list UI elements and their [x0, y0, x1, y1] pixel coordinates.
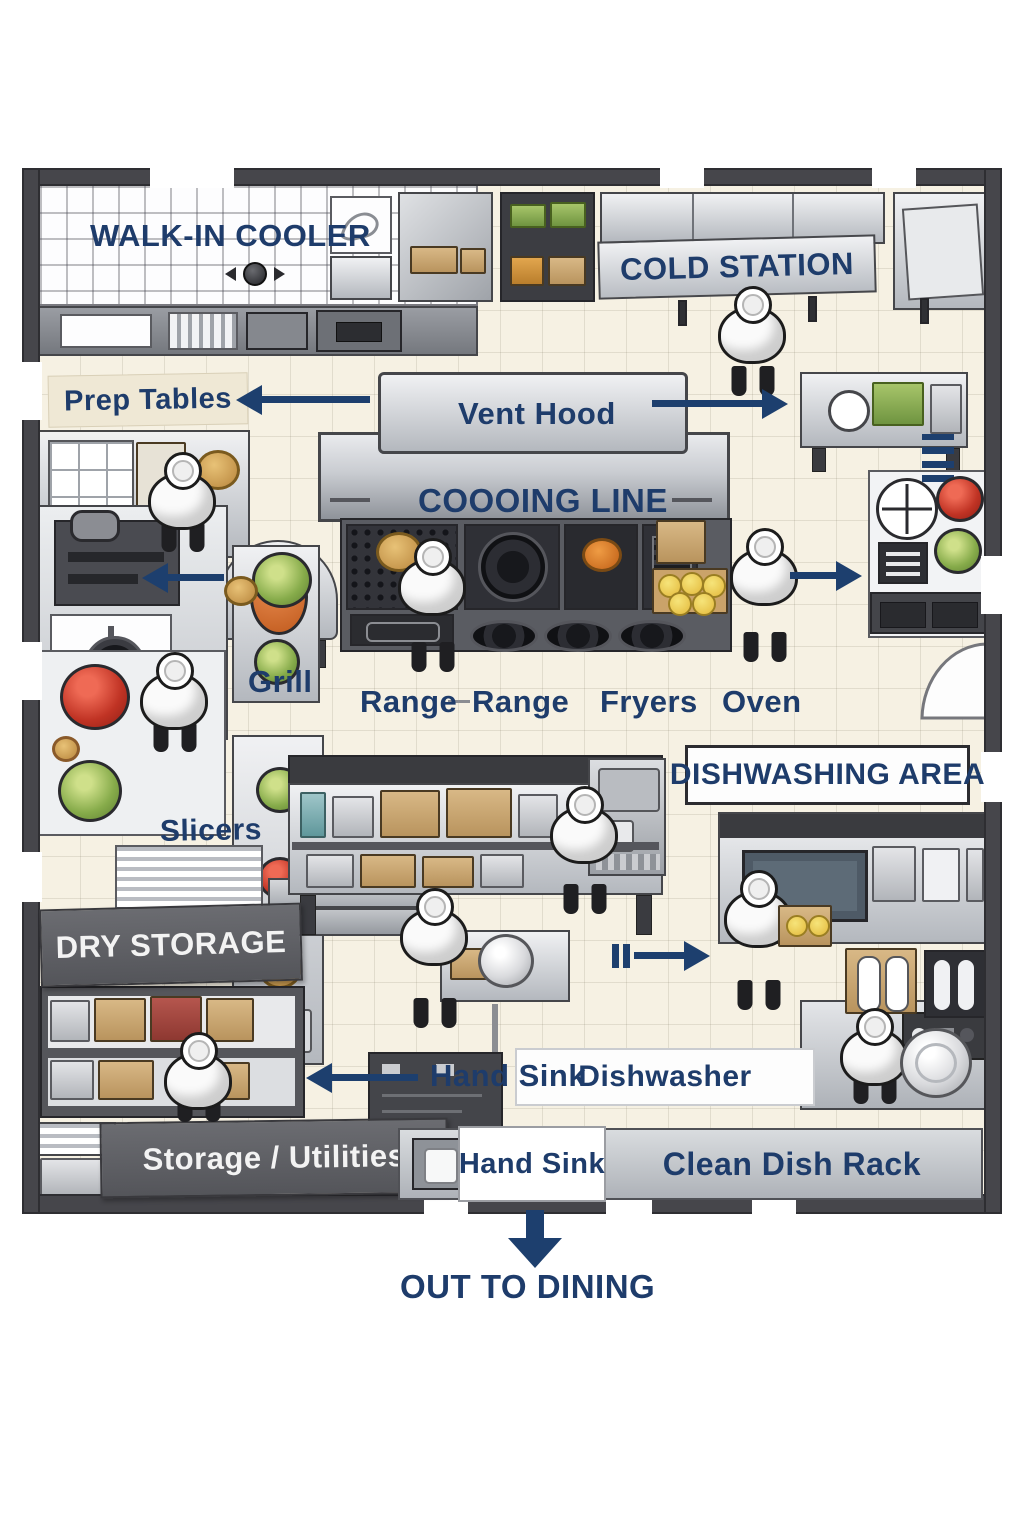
storage-box [50, 1060, 94, 1100]
tomato-plate-icon [936, 476, 984, 522]
bottle-icon [300, 792, 326, 838]
range-right-label: Range [472, 684, 569, 720]
storage-box [422, 856, 474, 888]
cooler-microwave [316, 310, 402, 352]
burner-icon [470, 620, 538, 652]
out-to-dining-arrow [508, 1210, 562, 1268]
storage-box [50, 1000, 90, 1042]
hand-sink-flow-label: Hand Sink [430, 1058, 586, 1094]
plate-rack [845, 948, 917, 1014]
top-counter-unit [330, 256, 392, 300]
dishwashing-area-label: DISHWASHING AREA [670, 758, 985, 792]
bin-icon [306, 854, 354, 888]
hand-sink-station: Hand Sink [458, 1126, 606, 1202]
utensil-hook-icon [920, 298, 929, 324]
wash-plate-icon [900, 1028, 972, 1098]
flow-arrow-to-cold [652, 400, 762, 407]
hand-sink-station-label: Hand Sink [459, 1148, 605, 1181]
prep-tables-label: Prep Tables [64, 382, 232, 418]
bin-icon [332, 796, 374, 838]
cooler-appliance [246, 312, 308, 350]
shelf-ladder-icon [922, 434, 954, 482]
fryers-label: Fryers [600, 684, 698, 720]
flow-arrow-left [168, 574, 224, 581]
small-bowl-icon [52, 736, 80, 762]
flow-arrow-to-dish [634, 952, 684, 959]
flow-hash-mark [612, 944, 619, 968]
kitchen-floor-plan: WALK-IN COOLER COLD STATION [0, 0, 1024, 1536]
storage-box [446, 788, 512, 838]
storage-box [94, 998, 146, 1042]
chef-figure [548, 786, 622, 914]
cold-station-label: COLD STATION [620, 246, 855, 288]
slicers-label: Slicers [160, 813, 262, 849]
wall-gap [981, 556, 1005, 614]
oven-label: Oven [722, 684, 802, 720]
bin-icon [480, 854, 524, 888]
dome-tray-icon [478, 934, 534, 988]
burner-icon [544, 620, 612, 652]
bottle-box [778, 905, 832, 947]
dry-storage-label: DRY STORAGE [55, 924, 286, 966]
storage-box [360, 854, 416, 888]
vent-louver [115, 845, 263, 909]
salad-plate-icon [934, 528, 982, 574]
scale-icon [876, 478, 938, 540]
range-left-label: Range [360, 684, 457, 720]
pass-shelf-unit [398, 192, 493, 302]
wall-gap [19, 852, 42, 902]
wall-gap [150, 165, 234, 188]
wall-gap [19, 642, 42, 700]
cooler-appliance [60, 314, 152, 348]
chef-figure [138, 652, 212, 752]
chef-figure [162, 1032, 236, 1122]
grate-panel [878, 542, 928, 584]
walk-in-cooler-label: WALK-IN COOLER [90, 218, 371, 254]
cooler-shelf-vent [168, 312, 238, 350]
cooking-line-label: COOOING LINE [418, 482, 668, 520]
utensil-hook-icon [678, 300, 687, 326]
wall-gap [660, 165, 704, 188]
chef-figure [728, 528, 802, 662]
wall-gap [872, 165, 916, 188]
cylinder-rack [924, 950, 986, 1018]
out-to-dining-label: OUT TO DINING [400, 1268, 655, 1306]
storage-box [98, 1060, 154, 1100]
corner-unit [893, 192, 991, 310]
tomato-plate-icon [60, 664, 130, 730]
storage-utilities-banner: Storage / Utilities [99, 1118, 448, 1199]
door-hinge-icon [225, 262, 285, 286]
salad-plate-icon [58, 760, 122, 822]
oven-box [656, 520, 706, 564]
prep-tables-banner: Prep Tables [48, 372, 249, 427]
nuts-bowl-icon [224, 576, 258, 606]
chef-figure [716, 286, 790, 396]
clean-dish-rack-label: Clean Dish Rack [663, 1146, 921, 1183]
wall-right [984, 168, 1002, 1214]
flow-arrow-to-prep [262, 396, 370, 403]
drawer-unit [870, 592, 986, 634]
chef-figure [396, 538, 470, 672]
dishwashing-area-box: DISHWASHING AREA [685, 745, 970, 805]
flow-hash-mark [623, 944, 630, 968]
salad-bowl-icon [252, 552, 312, 608]
range-top-right [564, 524, 638, 610]
flow-arrow-hand-sink [332, 1074, 418, 1081]
vent-hood-label: Vent Hood [458, 396, 616, 432]
burner-icon [478, 532, 548, 602]
grill-label: Grill [248, 664, 313, 700]
door-swing-icon [920, 642, 990, 720]
storage-utilities-label: Storage / Utilities [142, 1138, 405, 1178]
storage-box [380, 790, 440, 838]
produce-shelf [500, 192, 595, 302]
dishwasher-label: Dishwasher [578, 1060, 751, 1094]
chef-figure [146, 452, 220, 552]
wall-gap [19, 362, 42, 420]
flow-arrow-right [790, 572, 836, 579]
chef-figure [398, 888, 472, 1028]
burner-icon [618, 620, 686, 652]
utensil-hook-icon [808, 296, 817, 322]
dry-storage-banner: DRY STORAGE [39, 903, 303, 988]
